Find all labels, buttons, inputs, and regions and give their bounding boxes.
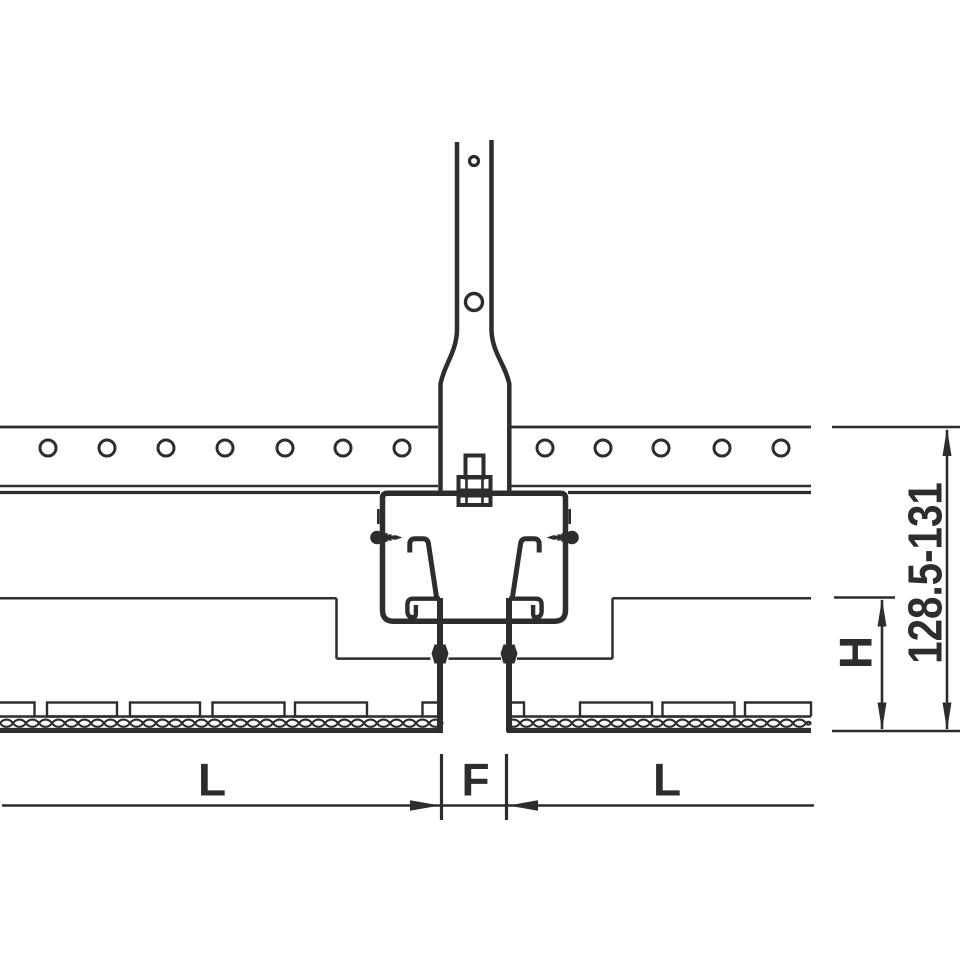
svg-text:L: L: [198, 754, 226, 806]
svg-text:F: F: [461, 754, 489, 806]
svg-text:H: H: [830, 636, 882, 669]
svg-text:128.5-131: 128.5-131: [900, 482, 953, 664]
svg-text:L: L: [653, 754, 681, 806]
